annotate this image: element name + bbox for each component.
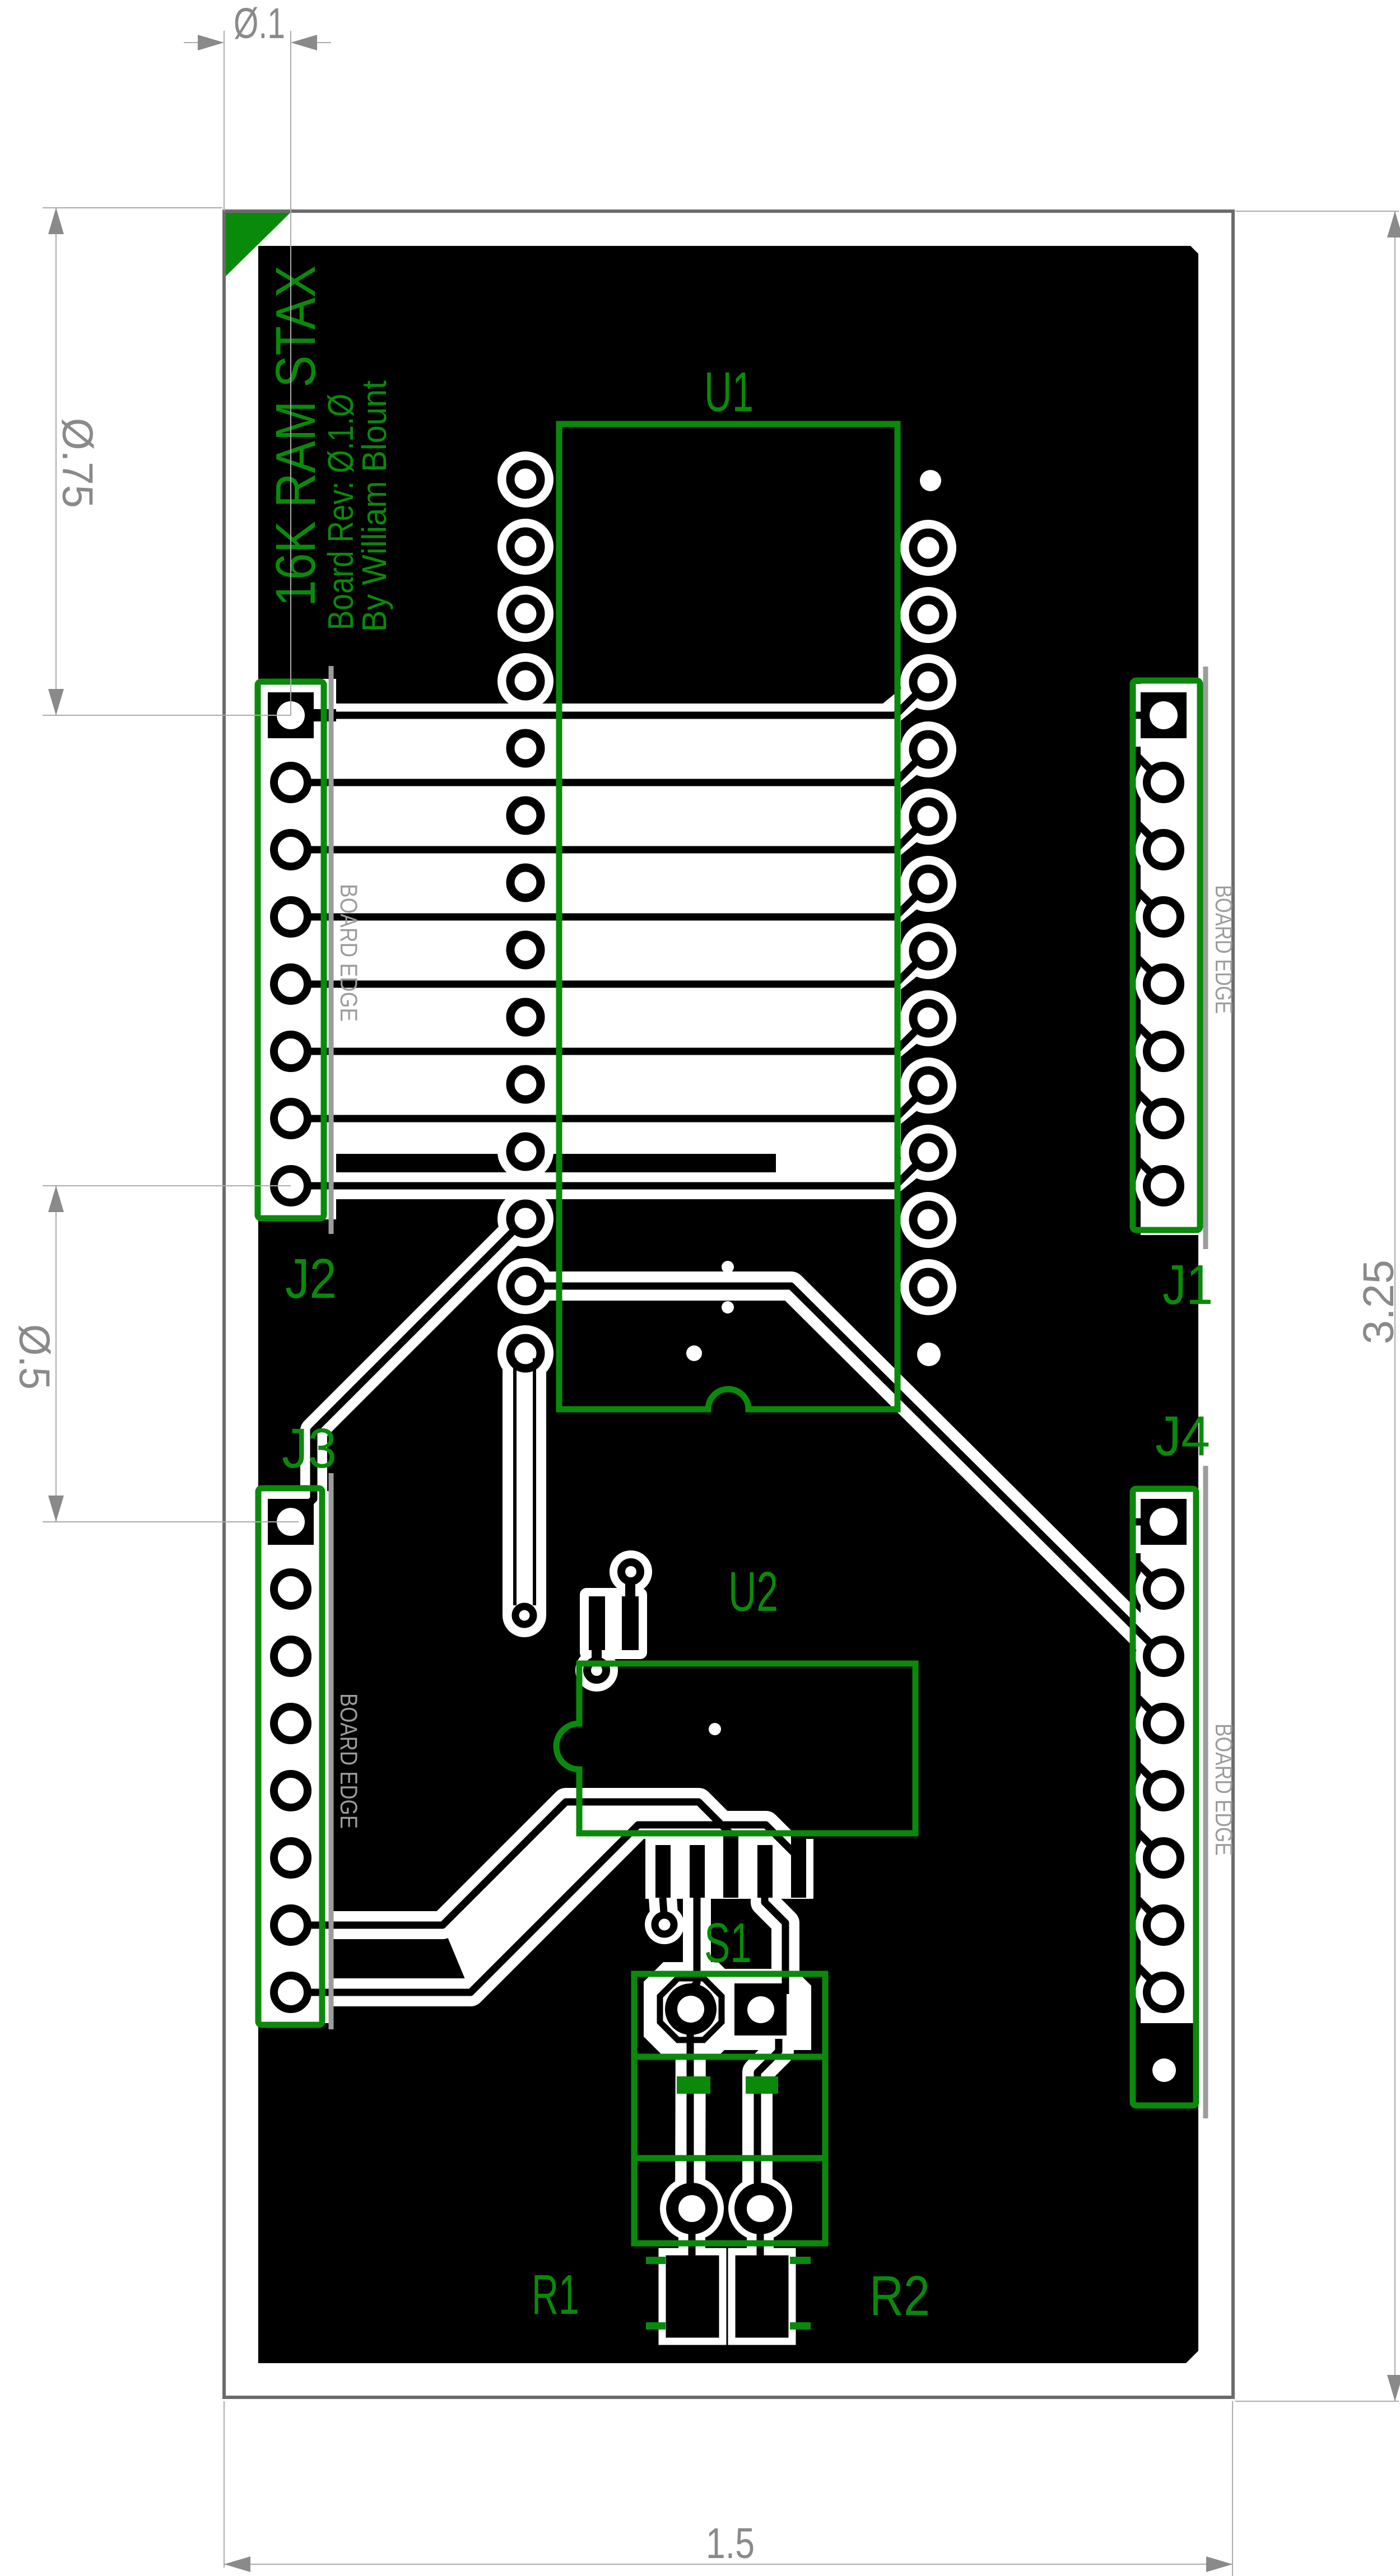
svg-text:BOARD EDGE: BOARD EDGE xyxy=(1210,885,1237,1014)
svg-text:J1: J1 xyxy=(1162,1254,1213,1316)
svg-text:R2: R2 xyxy=(869,2265,930,2327)
svg-text:BOARD EDGE: BOARD EDGE xyxy=(335,1693,362,1829)
svg-text:3.25: 3.25 xyxy=(1355,1260,1400,1344)
svg-text:U2: U2 xyxy=(728,1560,778,1623)
svg-text:BOARD EDGE: BOARD EDGE xyxy=(335,884,362,1022)
svg-text:J2: J2 xyxy=(285,1247,337,1310)
svg-text:R1: R1 xyxy=(532,2263,579,2326)
svg-text:By William Blount: By William Blount xyxy=(355,380,393,632)
svg-text:J4: J4 xyxy=(1155,1405,1210,1468)
svg-text:16K RAM STAX: 16K RAM STAX xyxy=(264,265,327,607)
svg-text:Ø.1: Ø.1 xyxy=(234,0,285,48)
svg-text:Ø.5: Ø.5 xyxy=(10,1324,58,1390)
svg-text:BOARD EDGE: BOARD EDGE xyxy=(1210,1723,1237,1856)
svg-text:S1: S1 xyxy=(704,1912,752,1974)
svg-text:J3: J3 xyxy=(282,1417,337,1480)
svg-text:Ø.75: Ø.75 xyxy=(53,418,101,508)
svg-text:U1: U1 xyxy=(704,361,754,423)
svg-text:1.5: 1.5 xyxy=(706,2519,755,2568)
